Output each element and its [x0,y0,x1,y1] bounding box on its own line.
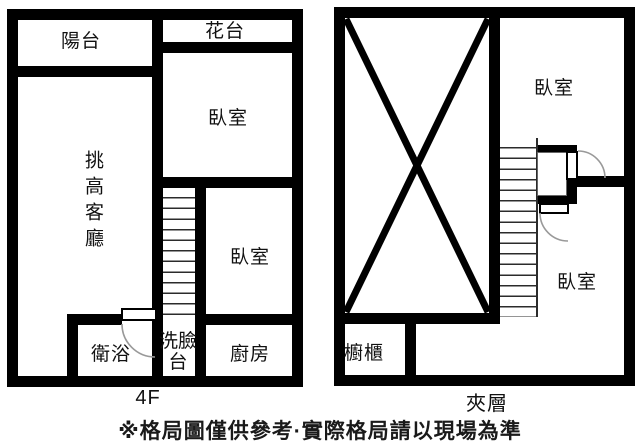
room-label-balcony: 陽台 [45,31,117,52]
room-label-living-room: 挑高客廳 [79,150,106,254]
wall-kitchen-top [206,314,303,325]
room-label-cabinet: 櫥櫃 [328,343,400,364]
wall [292,9,303,387]
room-label-kitchen: 廚房 [214,344,286,365]
wall-landing-right [566,179,577,196]
disclaimer-text: ※格局圖僅供參考·實際格局請以現場為準 [0,415,640,445]
room-label-washbasin: 洗臉台 [157,331,199,373]
room-label-bedroom-top: 臥室 [192,108,264,129]
floor-label-4f: 4F [118,387,178,410]
void-cross-line [346,19,488,312]
bedroom-top-door-arc [578,151,605,178]
floor-label-mezzanine: 夾層 [452,387,522,416]
wall-balcony-bottom [7,66,163,77]
room-label-bedroom-top: 臥室 [518,78,590,99]
stairs-mezzanine [500,138,538,317]
bedroom-bottom-door [539,203,569,214]
wall [624,7,635,386]
wall-bedroom-divider [152,177,303,188]
bedroom-top-door [566,151,578,180]
wall [334,7,345,386]
void-cross-line [346,19,488,312]
room-label-bathroom: 衛浴 [75,344,147,365]
stairs-4f [163,188,195,316]
wall-void-bottom [334,313,500,324]
wall-flowerbed-bottom [152,42,303,53]
wall-void-right [489,7,500,324]
wall-cabinet-right [405,313,416,386]
wall [334,7,635,18]
bedroom-bottom-door-arc [540,213,568,241]
room-label-bedroom-bottom: 臥室 [541,272,613,293]
room-label-flower-bed: 花台 [189,21,261,42]
floorplan-image: 陽台 花台 臥室 挑高客廳 臥室 衛浴 洗臉台 廚房 4F 臥室 臥室 櫥櫃 [0,0,640,448]
room-label-bedroom-mid: 臥室 [214,247,286,268]
wall [334,375,635,386]
bathroom-door [121,308,157,321]
stair-landing [537,152,567,196]
wall-bedroom-divider [577,176,635,187]
